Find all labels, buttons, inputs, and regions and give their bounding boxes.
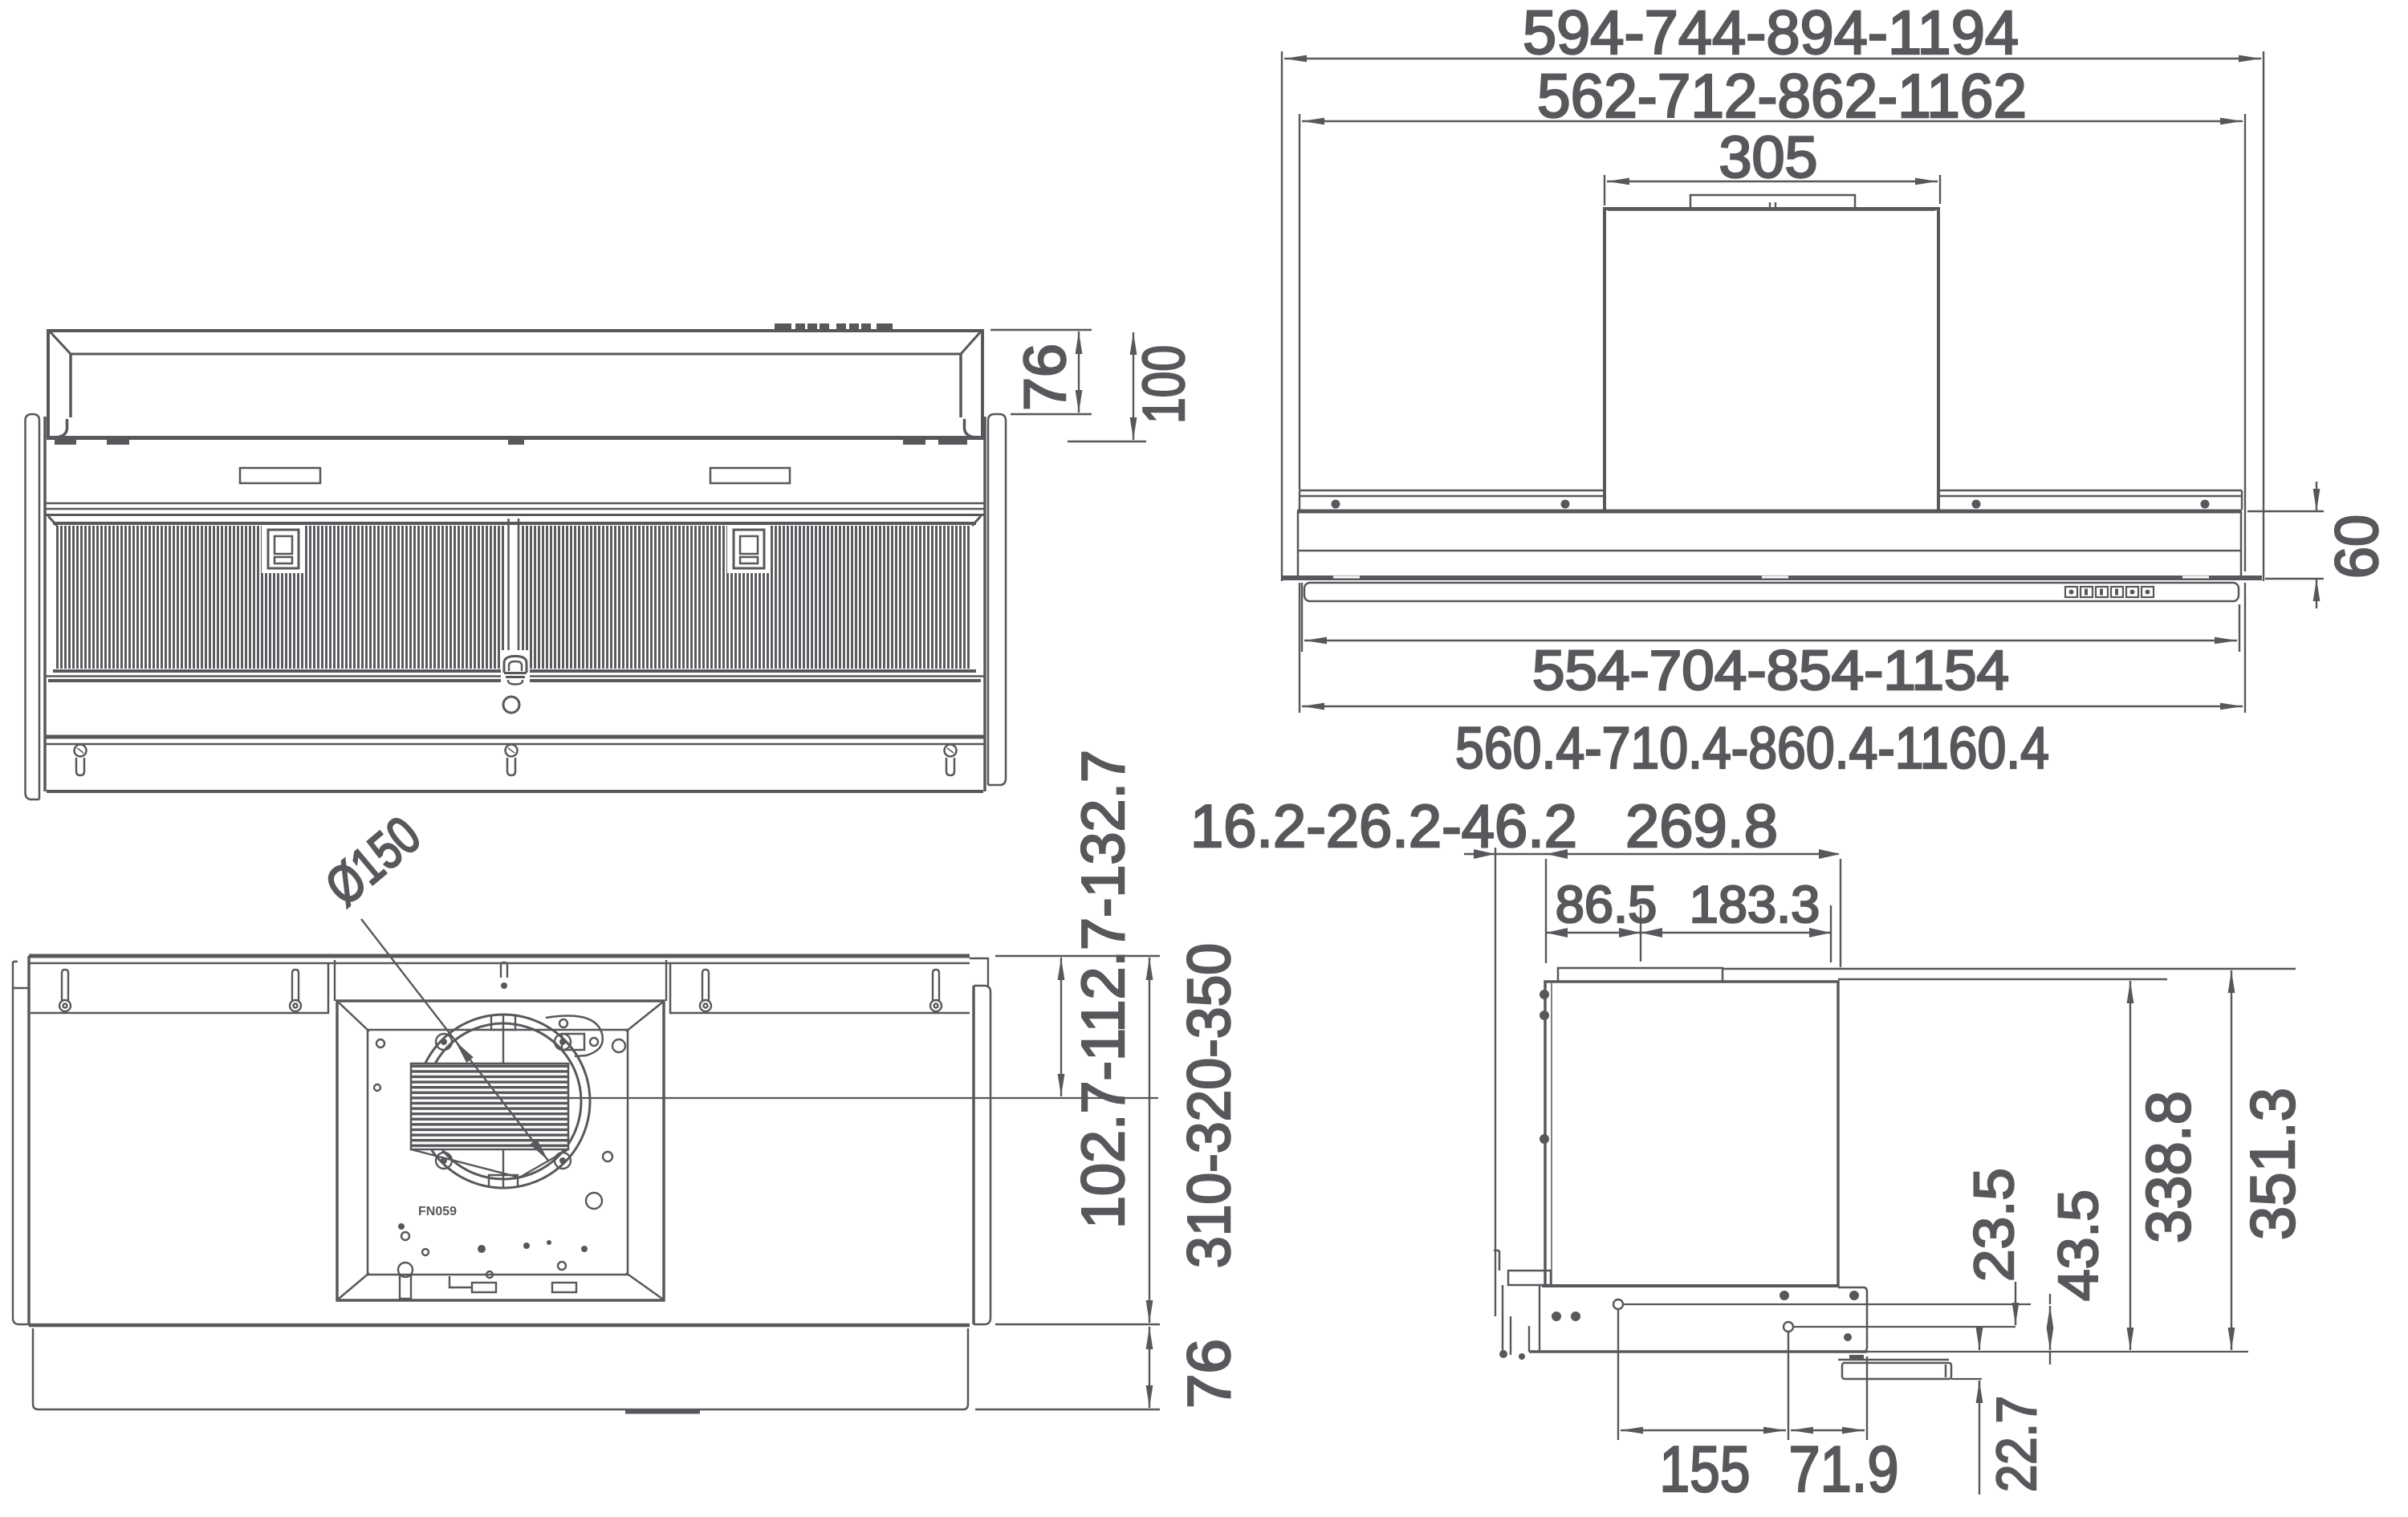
svg-text:594-744-894-1194: 594-744-894-1194: [1523, 0, 2019, 67]
svg-text:560.4-710.4-860.4-1160.4: 560.4-710.4-860.4-1160.4: [1455, 716, 2049, 781]
svg-text:554-704-854-1154: 554-704-854-1154: [1532, 639, 2009, 702]
svg-text:100: 100: [1132, 345, 1197, 424]
svg-text:310-320-350: 310-320-350: [1175, 943, 1243, 1268]
svg-text:338.8: 338.8: [2133, 1091, 2203, 1243]
svg-text:183.3: 183.3: [1690, 875, 1820, 933]
svg-text:71.9: 71.9: [1789, 1434, 1899, 1506]
svg-text:86.5: 86.5: [1556, 875, 1658, 933]
svg-text:22.7: 22.7: [1985, 1396, 2048, 1492]
svg-text:269.8: 269.8: [1625, 792, 1778, 860]
svg-text:16.2-26.2-46.2: 16.2-26.2-46.2: [1190, 792, 1577, 860]
svg-text:43.5: 43.5: [2047, 1190, 2109, 1301]
svg-text:351.3: 351.3: [2237, 1088, 2308, 1240]
svg-text:76: 76: [1013, 344, 1078, 411]
svg-text:76: 76: [1175, 1339, 1243, 1409]
svg-text:23.5: 23.5: [1963, 1168, 2025, 1282]
svg-text:102.7-112.7-132.7: 102.7-112.7-132.7: [1069, 750, 1137, 1229]
svg-text:155: 155: [1660, 1434, 1751, 1506]
svg-text:60: 60: [2323, 514, 2390, 579]
svg-text:FN059: FN059: [418, 1205, 457, 1218]
